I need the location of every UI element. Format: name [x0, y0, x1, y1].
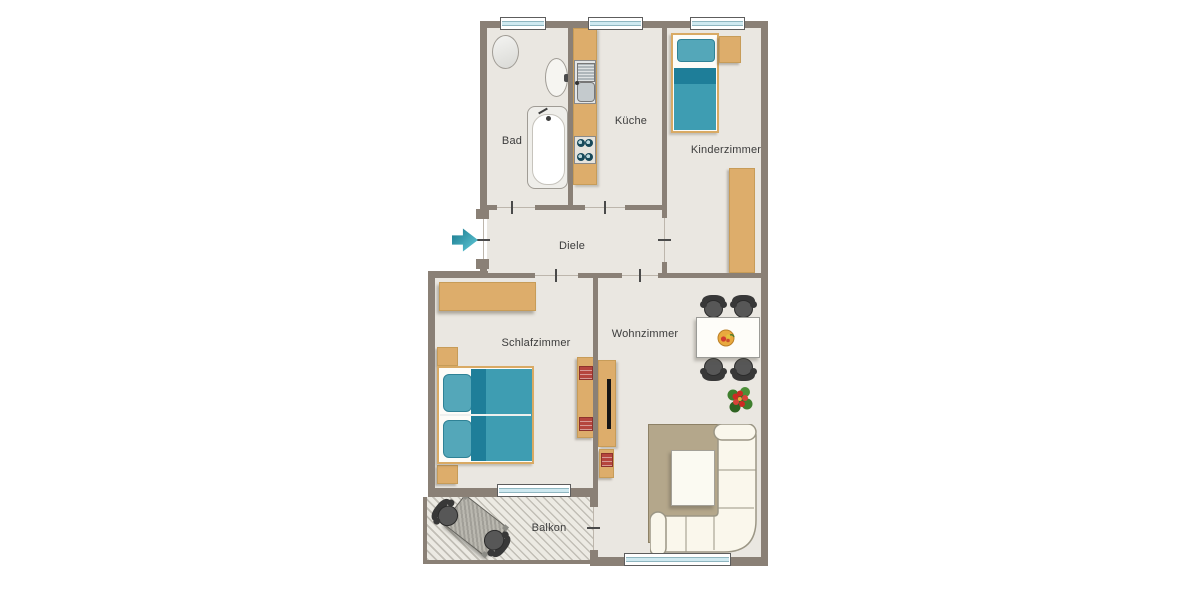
books-icon [579, 417, 593, 431]
wall-segment [476, 259, 489, 269]
dining-chair-icon [732, 356, 755, 381]
door-tick [604, 201, 606, 214]
window [588, 17, 643, 30]
wall-segment [487, 273, 535, 278]
wall-segment [658, 273, 761, 278]
wall-segment [535, 205, 585, 210]
wall-segment [480, 21, 487, 218]
dining-chair-icon [702, 356, 725, 381]
burner-icon [577, 139, 585, 147]
wall-segment [593, 278, 598, 488]
bathtub-tap-icon [546, 116, 551, 121]
room-label-bad: Bad [502, 135, 522, 147]
tv-sideboard-icon [598, 360, 616, 447]
entrance-arrow-icon [452, 227, 478, 253]
wall-segment [578, 273, 622, 278]
wall-segment [662, 28, 667, 218]
shelf-icon [577, 357, 594, 438]
shelf-icon [599, 449, 614, 478]
room-label-balkon: Balkon [532, 522, 567, 534]
balcony-edge [423, 560, 595, 564]
stove-icon [574, 136, 596, 164]
door-tick [639, 269, 641, 282]
burner-icon [585, 153, 593, 161]
room-label-wohnzimmer: Wohnzimmer [612, 328, 679, 340]
burner-icon [577, 153, 585, 161]
books-icon [579, 366, 593, 380]
window [690, 17, 745, 30]
window [500, 17, 546, 30]
room-label-diele: Diele [559, 240, 585, 252]
window [497, 484, 571, 497]
wall-segment [428, 271, 435, 497]
door-opening [497, 207, 535, 208]
fruit-bowl-icon [717, 329, 735, 347]
wardrobe [439, 282, 536, 311]
balcony-edge [423, 497, 427, 563]
double-bed-icon [437, 366, 534, 464]
room-label-kueche: Küche [615, 115, 647, 127]
door-tick [511, 201, 513, 214]
pillow-icon [443, 374, 472, 412]
pillow-icon [677, 39, 715, 62]
washbasin-icon [545, 58, 568, 97]
door-tick [555, 269, 557, 282]
wall-segment [428, 271, 488, 278]
wardrobe [729, 168, 755, 273]
tv-icon [607, 379, 611, 429]
door-tick [477, 239, 490, 241]
wall-segment [761, 21, 768, 566]
room-label-schlafzimmer: Schlafzimmer [501, 337, 570, 349]
toilet-icon [492, 35, 519, 69]
wall-segment [487, 205, 497, 210]
corner-sofa-icon [650, 424, 760, 556]
single-bed-icon [671, 33, 719, 133]
bathtub-basin [532, 114, 565, 185]
books-icon [601, 453, 613, 467]
bed-divider [440, 414, 531, 416]
sink-drainboard [577, 63, 595, 82]
floor-plan: Bad Küche Kinderzimmer Diele Schlafzimme… [0, 0, 1200, 600]
wall-segment [625, 205, 667, 210]
door-tick [658, 239, 671, 241]
door-tick [587, 527, 600, 529]
nightstand [719, 36, 741, 63]
sink-basin [577, 82, 595, 102]
plant-icon [727, 386, 753, 414]
blanket-fold [674, 68, 716, 84]
window [624, 553, 731, 566]
blanket [674, 84, 716, 130]
kitchen-sink-icon [574, 60, 596, 104]
wall-segment [568, 28, 573, 208]
wall-segment [590, 497, 598, 507]
burner-icon [585, 139, 593, 147]
nightstand [437, 347, 458, 366]
nightstand [437, 465, 458, 484]
pillow-icon [443, 420, 472, 458]
bathtub-icon [527, 106, 568, 189]
dining-table-icon [696, 317, 760, 358]
room-label-kinderzimmer: Kinderzimmer [691, 144, 761, 156]
sink-tap-icon [575, 81, 579, 85]
wall-segment [476, 209, 489, 219]
